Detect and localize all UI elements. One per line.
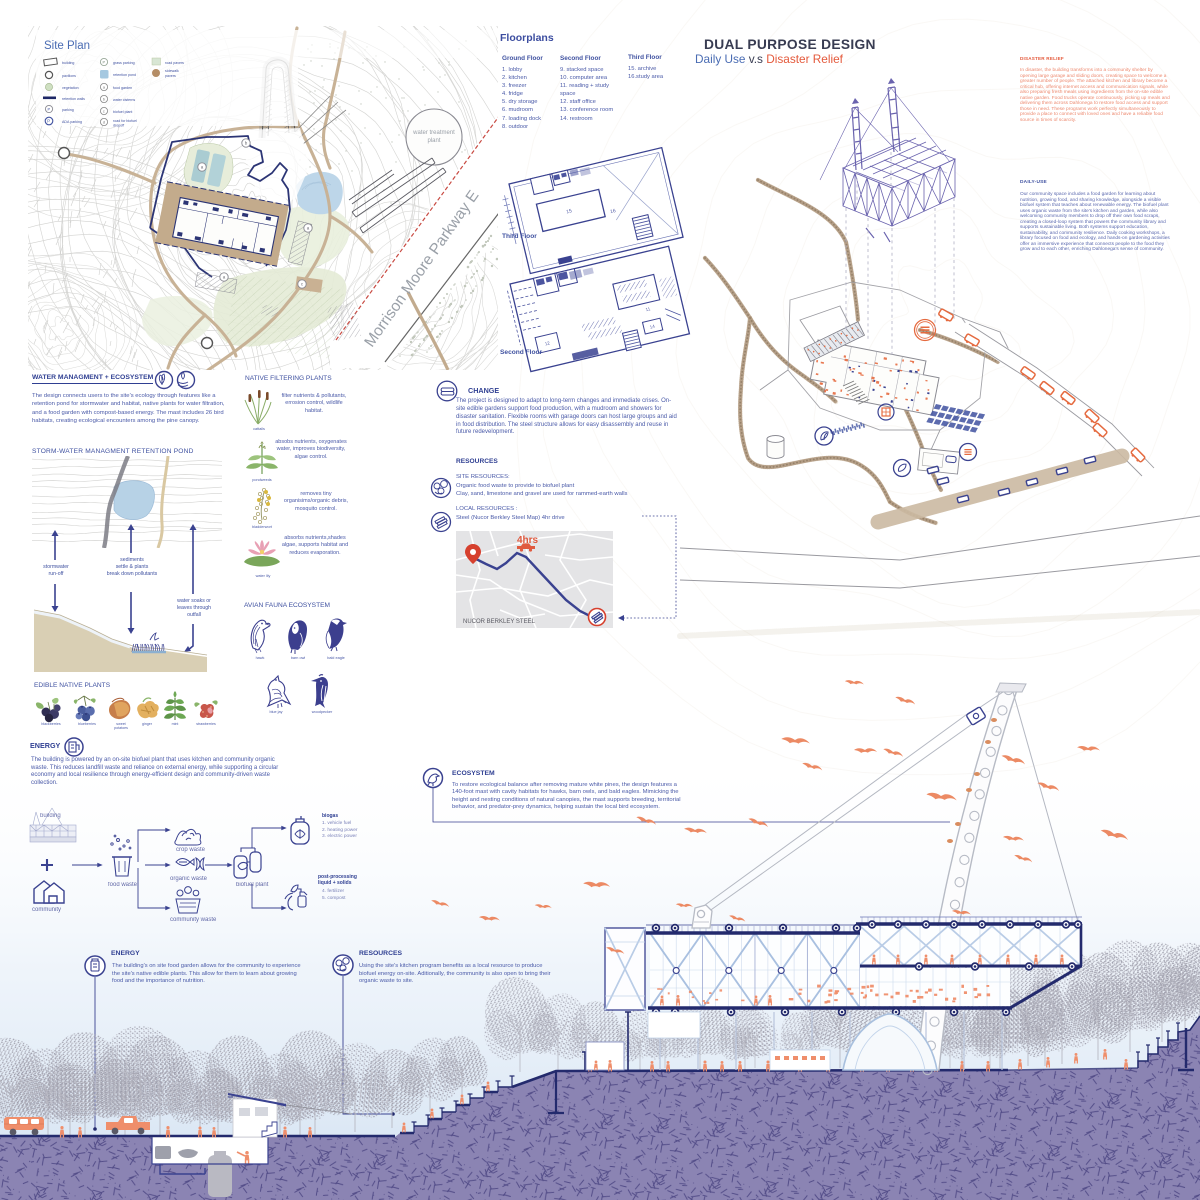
svg-text:dropoff: dropoff: [113, 124, 124, 128]
svg-text:grass parking: grass parking: [113, 61, 135, 65]
svg-text:P: P: [103, 60, 106, 65]
svg-text:biofuel plant: biofuel plant: [113, 110, 132, 114]
svg-text:P: P: [47, 119, 50, 124]
svg-text:water cisterns: water cisterns: [113, 98, 135, 102]
svg-text:water treatment: water treatment: [412, 130, 455, 136]
svg-text:pavers: pavers: [165, 74, 176, 78]
svg-text:d: d: [103, 120, 105, 125]
svg-text:sidewalk: sidewalk: [165, 69, 179, 73]
svg-text:food waste: food waste: [108, 882, 138, 888]
svg-text:ADA parking: ADA parking: [62, 120, 82, 124]
svg-text:building: building: [62, 61, 74, 65]
svg-text:plant: plant: [427, 138, 440, 144]
svg-text:vegetation: vegetation: [62, 86, 79, 90]
svg-text:P: P: [48, 107, 51, 112]
svg-text:organic waste: organic waste: [170, 876, 208, 882]
svg-text:community: community: [32, 907, 61, 913]
svg-text:parking: parking: [62, 108, 74, 112]
svg-text:NUCOR BERKLEY STEEL: NUCOR BERKLEY STEEL: [463, 619, 536, 625]
svg-text:biofuel plant: biofuel plant: [236, 882, 269, 888]
svg-text:retention pond: retention pond: [113, 73, 136, 77]
svg-text:Site Plan: Site Plan: [44, 40, 90, 52]
svg-text:crop waste: crop waste: [176, 847, 206, 853]
svg-text:road pavers: road pavers: [165, 61, 184, 65]
svg-text:community waste: community waste: [170, 917, 217, 923]
svg-text:food garden: food garden: [113, 86, 132, 90]
svg-text:retention walls: retention walls: [62, 97, 85, 101]
svg-text:road for biofuel: road for biofuel: [113, 119, 137, 123]
svg-text:c: c: [103, 109, 105, 114]
svg-text:building: building: [40, 813, 61, 819]
svg-text:pavilions: pavilions: [62, 74, 76, 78]
